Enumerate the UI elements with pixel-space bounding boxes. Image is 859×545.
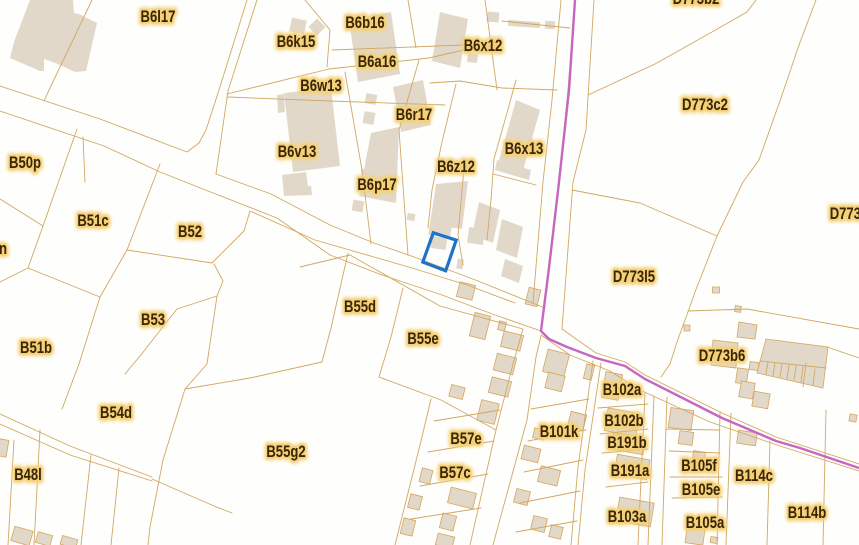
svg-text:B51b: B51b	[20, 338, 52, 357]
svg-text:D773b2: D773b2	[673, 0, 720, 8]
svg-text:B114b: B114b	[788, 503, 827, 522]
svg-text:B105f: B105f	[681, 456, 717, 475]
svg-text:B6a16: B6a16	[358, 52, 397, 71]
svg-text:B51c: B51c	[77, 211, 108, 230]
svg-text:B55e: B55e	[407, 329, 438, 348]
svg-text:B48l: B48l	[14, 465, 42, 484]
svg-text:B54d: B54d	[100, 403, 132, 422]
svg-text:n: n	[0, 239, 7, 258]
svg-text:B6z12: B6z12	[437, 157, 475, 176]
svg-text:D773c2: D773c2	[682, 95, 728, 114]
svg-text:B191a: B191a	[611, 461, 650, 480]
svg-text:B6x12: B6x12	[464, 36, 503, 55]
svg-text:B105a: B105a	[686, 513, 725, 532]
svg-text:B6k15: B6k15	[277, 32, 316, 51]
svg-text:B53: B53	[141, 310, 165, 329]
svg-text:B101k: B101k	[540, 422, 579, 441]
svg-text:B103a: B103a	[608, 507, 647, 526]
svg-text:B6b16: B6b16	[345, 13, 384, 32]
svg-text:B6x13: B6x13	[505, 139, 544, 158]
svg-text:B55g2: B55g2	[266, 442, 305, 461]
svg-text:B52: B52	[178, 222, 202, 241]
svg-text:B6r17: B6r17	[396, 105, 432, 124]
svg-text:B57e: B57e	[450, 429, 481, 448]
svg-text:B6w13: B6w13	[300, 76, 342, 95]
svg-text:D773b2: D773b2	[830, 204, 859, 223]
svg-text:B50p: B50p	[9, 153, 41, 172]
svg-text:B102a: B102a	[603, 380, 642, 399]
svg-text:B191b: B191b	[607, 433, 646, 452]
svg-text:B6p17: B6p17	[357, 175, 396, 194]
svg-text:B102b: B102b	[604, 411, 643, 430]
svg-text:B105e: B105e	[682, 480, 721, 499]
svg-text:B57c: B57c	[439, 463, 470, 482]
svg-text:B55d: B55d	[344, 297, 376, 316]
svg-text:B114c: B114c	[735, 466, 773, 485]
svg-text:B6v13: B6v13	[278, 142, 317, 161]
svg-text:B6l17: B6l17	[141, 7, 176, 26]
svg-text:D773l5: D773l5	[613, 267, 655, 286]
svg-text:D773b6: D773b6	[699, 346, 746, 365]
